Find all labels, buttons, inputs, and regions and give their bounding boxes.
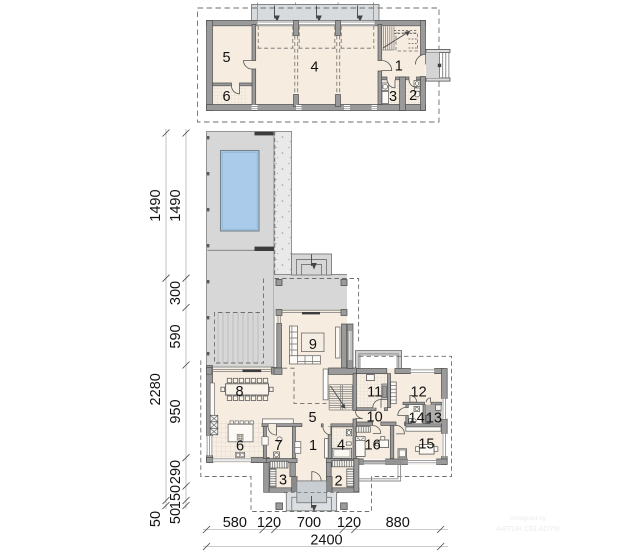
svg-text:12: 12 [411, 385, 427, 401]
svg-text:11: 11 [367, 385, 382, 401]
svg-text:150: 150 [168, 485, 184, 509]
svg-text:16: 16 [365, 437, 381, 453]
svg-text:50: 50 [148, 511, 164, 527]
svg-text:13: 13 [426, 411, 442, 427]
svg-text:880: 880 [386, 515, 410, 531]
svg-text:580: 580 [223, 515, 247, 531]
svg-text:6: 6 [223, 89, 231, 105]
svg-text:8: 8 [235, 384, 243, 400]
svg-text:290: 290 [168, 460, 184, 484]
svg-text:3: 3 [389, 89, 397, 105]
svg-text:1490: 1490 [148, 189, 164, 221]
svg-text:2400: 2400 [310, 533, 342, 549]
svg-text:5: 5 [223, 50, 231, 66]
svg-text:1: 1 [309, 438, 317, 454]
svg-text:120: 120 [337, 515, 361, 531]
svg-text:120: 120 [257, 515, 281, 531]
svg-text:300: 300 [168, 281, 184, 305]
svg-text:1490: 1490 [168, 189, 184, 221]
svg-text:5: 5 [309, 410, 317, 426]
svg-text:10: 10 [367, 410, 383, 426]
svg-text:15: 15 [418, 437, 434, 453]
svg-text:14: 14 [409, 411, 425, 427]
svg-text:50: 50 [168, 508, 184, 524]
svg-text:7: 7 [274, 438, 282, 454]
svg-text:950: 950 [168, 399, 184, 423]
svg-text:Designed by: Designed by [510, 515, 547, 522]
svg-text:9: 9 [309, 337, 317, 353]
svg-text:4: 4 [337, 438, 345, 454]
svg-text:2: 2 [334, 474, 342, 490]
svg-text:6: 6 [236, 439, 244, 455]
svg-text:2: 2 [409, 88, 417, 104]
svg-text:2280: 2280 [148, 373, 164, 405]
svg-text:590: 590 [168, 324, 184, 348]
svg-text:4: 4 [311, 60, 319, 76]
svg-text:3: 3 [279, 473, 287, 489]
svg-text:ARTUR CELADYN: ARTUR CELADYN [496, 524, 559, 533]
svg-text:700: 700 [297, 515, 321, 531]
svg-text:1: 1 [395, 59, 403, 75]
